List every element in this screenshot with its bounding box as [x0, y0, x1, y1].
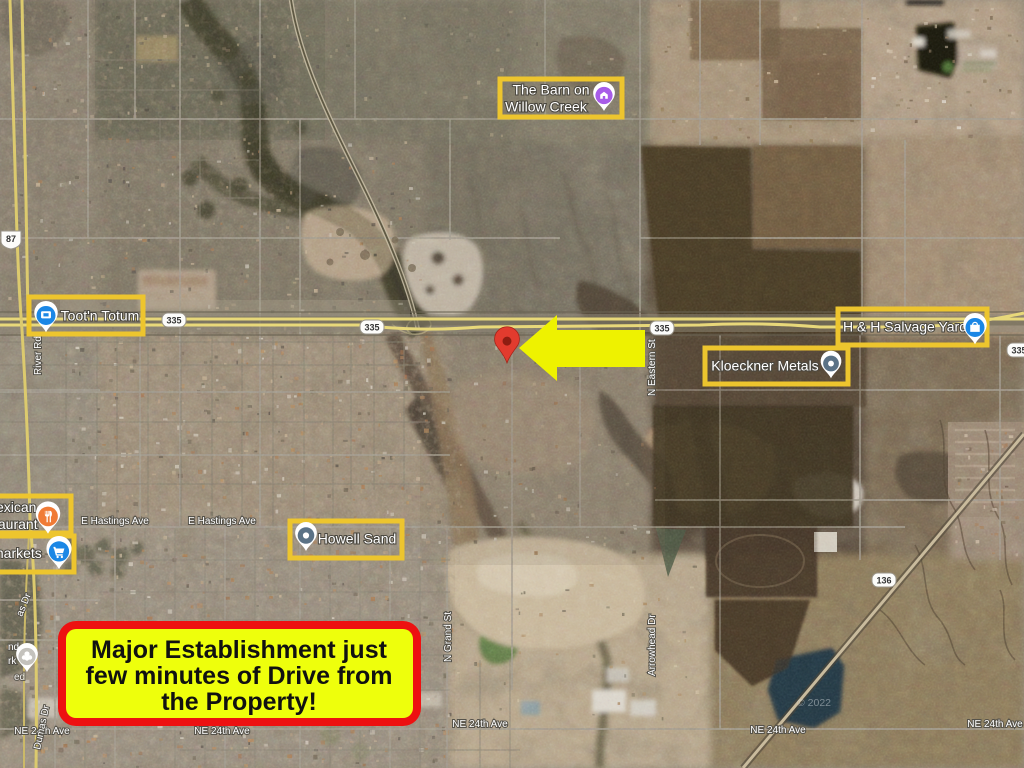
svg-text:Arrowhead Dr: Arrowhead Dr — [647, 614, 658, 676]
svg-text:ed: ed — [14, 672, 25, 683]
svg-text:N Grand St: N Grand St — [443, 612, 454, 662]
svg-text:River Rd: River Rd — [33, 336, 44, 375]
svg-text:NE 24th Ave: NE 24th Ave — [194, 726, 250, 737]
svg-text:NE 24th Ave: NE 24th Ave — [750, 725, 806, 736]
svg-text:335: 335 — [654, 324, 669, 334]
svg-text:exican: exican — [0, 499, 36, 515]
svg-text:E Hastings Ave: E Hastings Ave — [188, 516, 256, 527]
svg-text:the Property!: the Property! — [161, 688, 317, 716]
svg-text:NE 24th Ave: NE 24th Ave — [452, 719, 508, 730]
svg-text:markets: markets — [0, 545, 42, 561]
svg-text:Kloeckner Metals: Kloeckner Metals — [711, 358, 818, 374]
svg-text:taurant: taurant — [0, 516, 38, 532]
svg-text:335: 335 — [166, 316, 181, 326]
svg-text:335: 335 — [364, 323, 379, 333]
svg-text:The Barn on: The Barn on — [512, 82, 589, 98]
svg-text:few minutes of Drive from: few minutes of Drive from — [86, 662, 393, 690]
svg-text:H & H Salvage Yard: H & H Salvage Yard — [843, 319, 967, 335]
svg-text:E Hastings Ave: E Hastings Ave — [81, 516, 149, 527]
svg-text:© 2022: © 2022 — [797, 697, 831, 709]
svg-text:N Eastern St: N Eastern St — [647, 339, 658, 396]
svg-text:87: 87 — [6, 234, 16, 244]
svg-text:rk: rk — [8, 656, 17, 667]
svg-text:Toot'n Totum: Toot'n Totum — [61, 308, 140, 324]
svg-text:Howell Sand: Howell Sand — [318, 531, 397, 547]
svg-text:136: 136 — [876, 576, 891, 586]
svg-text:Willow Creek: Willow Creek — [505, 99, 588, 115]
svg-text:335: 335 — [1011, 346, 1024, 356]
svg-text:Major Establishment just: Major Establishment just — [91, 636, 388, 664]
svg-text:NE 24th Ave: NE 24th Ave — [967, 719, 1023, 730]
